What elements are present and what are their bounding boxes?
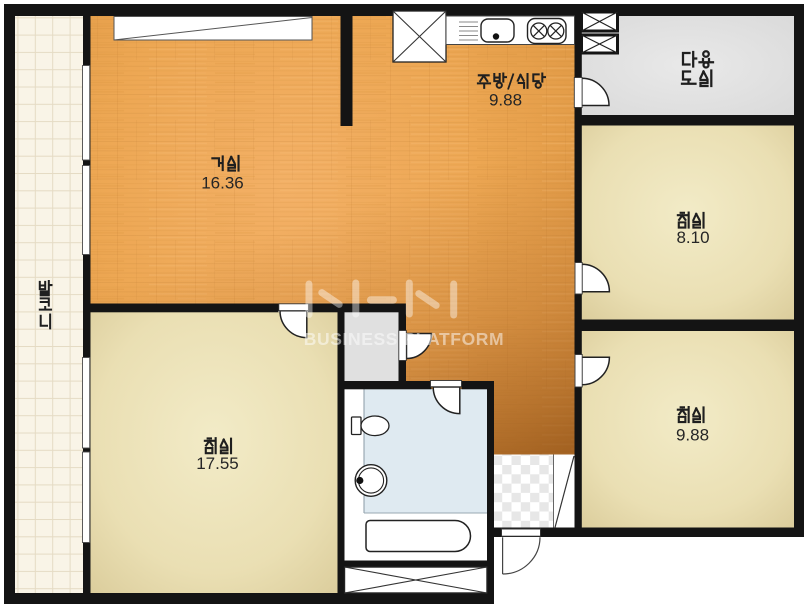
svg-text:17.55: 17.55 — [196, 454, 239, 473]
svg-text:BUSINESS PLATFORM: BUSINESS PLATFORM — [304, 329, 504, 349]
svg-text:9.88: 9.88 — [489, 91, 522, 110]
svg-text:9.88: 9.88 — [676, 426, 709, 445]
svg-text:8.10: 8.10 — [676, 228, 709, 247]
svg-text:16.36: 16.36 — [201, 174, 244, 193]
